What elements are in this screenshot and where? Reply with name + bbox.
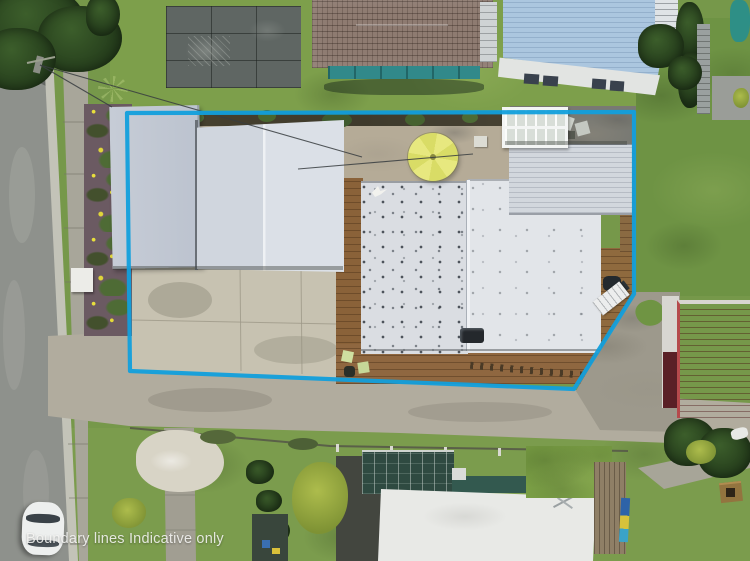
power-pole bbox=[33, 56, 44, 74]
power-wires bbox=[40, 65, 473, 169]
caption-boundary-disclaimer: Boundary lines Indicative only bbox=[26, 531, 224, 547]
aerial-photo: Boundary lines Indicative only bbox=[0, 0, 750, 561]
overlay-layer bbox=[0, 0, 750, 561]
boundary-line-overlay bbox=[127, 112, 634, 389]
